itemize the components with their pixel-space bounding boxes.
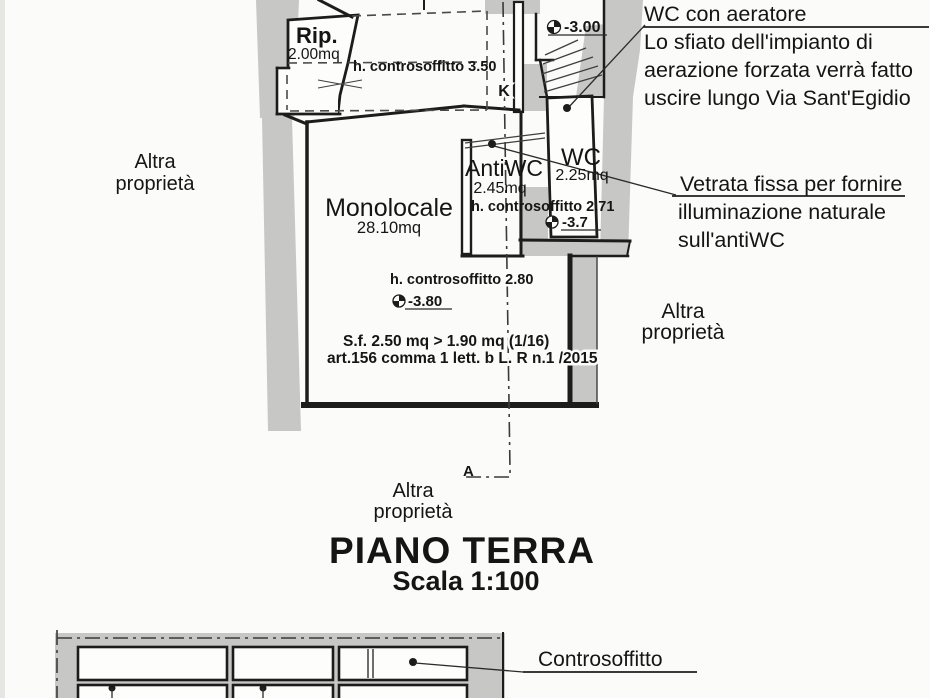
room-label-antiwc: AntiWC [465,155,543,181]
neighbor-right-line1: Altra [661,300,705,323]
neighbor-right-line2: proprietà [642,321,725,344]
neighbor-left-line2: proprietà [116,173,196,195]
room-area-wc: 2.25mq [555,167,608,184]
scanned-floor-plan-page: Rip. 2.00mq h. controsoffitto 3.50 K -3.… [0,0,930,698]
vetrata-note-line1: Vetrata fissa per fornire [680,172,902,196]
section-mark-bottom: A [463,463,474,480]
ceiling-height-monolocale: h. controsoffitto 2.80 [390,272,533,288]
neighbor-bottom-line1: Altra [392,480,434,502]
aerator-note-title: WC con aeratore [644,2,807,26]
room-label-rip: Rip. [296,23,338,48]
controsoffitto-label: Controsoffitto [538,648,663,671]
section-mark-top: K [498,83,510,100]
aerator-note-line3: uscire lungo Via Sant'Egidio [644,86,911,110]
ceiling-height-antiwc: h. controsoffitto 2.71 [471,199,614,215]
neighbor-bottom-line2: proprietà [374,501,454,523]
level-monolocale-value: -3.80 [408,293,442,310]
level-marker-wc-icon [546,216,558,228]
aerator-note-line1: Lo sfiato dell'impianto di [644,30,873,54]
regulation-note-line1: S.f. 2.50 mq > 1.90 mq (1/16) [343,333,549,350]
plan-scale: Scala 1:100 [392,566,539,596]
plan-title: PIANO TERRA [329,530,595,571]
vetrata-note-line2: illuminazione naturale [678,200,886,224]
room-area-monolocale: 28.10mq [357,219,421,237]
vetrata-note-line3: sull'antiWC [678,228,785,252]
room-area-antiwc: 2.45mq [473,180,526,197]
level-marker-monolocale-icon [393,295,405,307]
level-marker-entry-icon [548,21,561,34]
section-detail-drawing [55,630,505,698]
regulation-note-line2: art.156 comma 1 lett. b L. R n.1 /2015 [327,350,598,367]
neighbor-left-line1: Altra [134,151,176,173]
level-wc-value: -3.7 [562,214,588,231]
ceiling-height-hall: h. controsoffitto 3.50 [353,59,496,75]
room-area-rip: 2.00mq [288,46,340,63]
aerator-note-line2: aerazione forzata verrà fatto [644,58,913,82]
level-entry-value: -3.00 [564,19,601,36]
floor-plan-drawing: Rip. 2.00mq h. controsoffitto 3.50 K -3.… [0,0,930,698]
room-label-monolocale: Monolocale [325,194,453,222]
